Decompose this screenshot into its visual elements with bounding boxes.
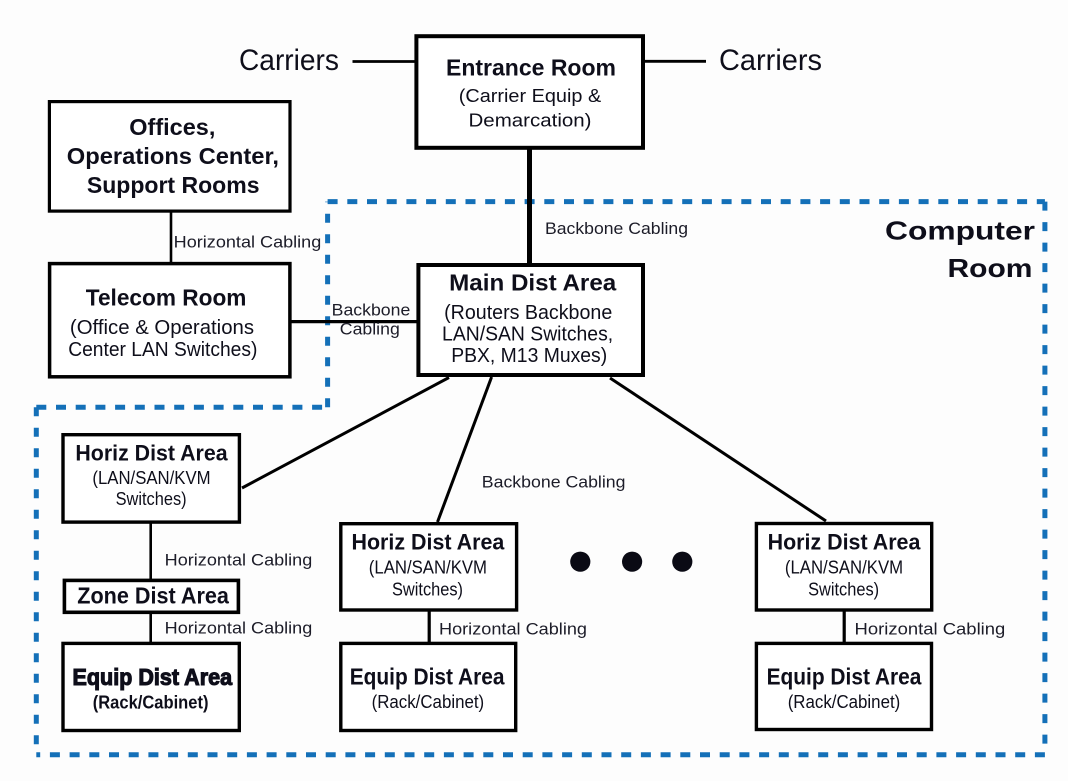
svg-text:Center LAN Switches): Center LAN Switches) [68,339,257,361]
svg-text:Telecom Room: Telecom Room [86,284,247,310]
svg-text:Offices,: Offices, [129,114,215,140]
svg-text:Main Dist Area: Main Dist Area [449,270,616,296]
svg-text:Computer: Computer [885,216,1035,246]
svg-text:(LAN/SAN/KVM: (LAN/SAN/KVM [369,558,487,578]
svg-text:(Rack/Cabinet): (Rack/Cabinet) [788,691,901,712]
svg-text:Operations Center,: Operations Center, [67,143,279,169]
svg-text:Carriers: Carriers [719,44,822,77]
svg-text:Horiz Dist Area: Horiz Dist Area [768,530,921,555]
svg-text:Horizontal Cabling: Horizontal Cabling [174,234,322,252]
svg-text:(Rack/Cabinet): (Rack/Cabinet) [93,692,209,713]
svg-text:Support Rooms: Support Rooms [87,172,260,198]
svg-text:Equip Dist Area: Equip Dist Area [767,664,922,690]
svg-text:Carriers: Carriers [239,44,339,77]
svg-text:Horizontal Cabling: Horizontal Cabling [165,552,313,570]
svg-text:Demarcation): Demarcation) [469,110,592,131]
svg-text:(Routers Backbone: (Routers Backbone [444,302,612,324]
svg-text:Horiz Dist Area: Horiz Dist Area [75,440,228,465]
svg-text:Backbone: Backbone [332,302,411,320]
svg-text:Horizontal Cabling: Horizontal Cabling [165,620,313,638]
svg-text:Backbone Cabling: Backbone Cabling [545,220,688,238]
svg-text:Room: Room [948,253,1033,283]
svg-text:PBX, M13 Muxes): PBX, M13 Muxes) [451,345,607,367]
svg-text:Equip Dist Area: Equip Dist Area [73,664,233,690]
svg-text:LAN/SAN Switches,: LAN/SAN Switches, [442,324,613,346]
svg-text:(Office & Operations: (Office & Operations [70,317,254,339]
svg-text:Horizontal Cabling: Horizontal Cabling [855,621,1006,639]
svg-text:(LAN/SAN/KVM: (LAN/SAN/KVM [785,558,903,578]
svg-text:Equip Dist Area: Equip Dist Area [350,664,505,690]
svg-text:Backbone Cabling: Backbone Cabling [482,474,626,492]
svg-text:Entrance Room: Entrance Room [446,55,616,81]
svg-text:Horiz Dist Area: Horiz Dist Area [352,530,505,555]
svg-text:(Carrier Equip &: (Carrier Equip & [459,85,602,106]
svg-text:Switches): Switches) [808,579,879,599]
svg-text:Cabling: Cabling [340,321,400,339]
svg-text:Switches): Switches) [116,489,187,509]
svg-text:Switches): Switches) [392,579,463,599]
svg-text:(Rack/Cabinet): (Rack/Cabinet) [372,691,485,712]
svg-text:Zone Dist Area: Zone Dist Area [77,583,229,609]
svg-text:(LAN/SAN/KVM: (LAN/SAN/KVM [92,468,210,488]
svg-text:Horizontal Cabling: Horizontal Cabling [439,621,587,639]
